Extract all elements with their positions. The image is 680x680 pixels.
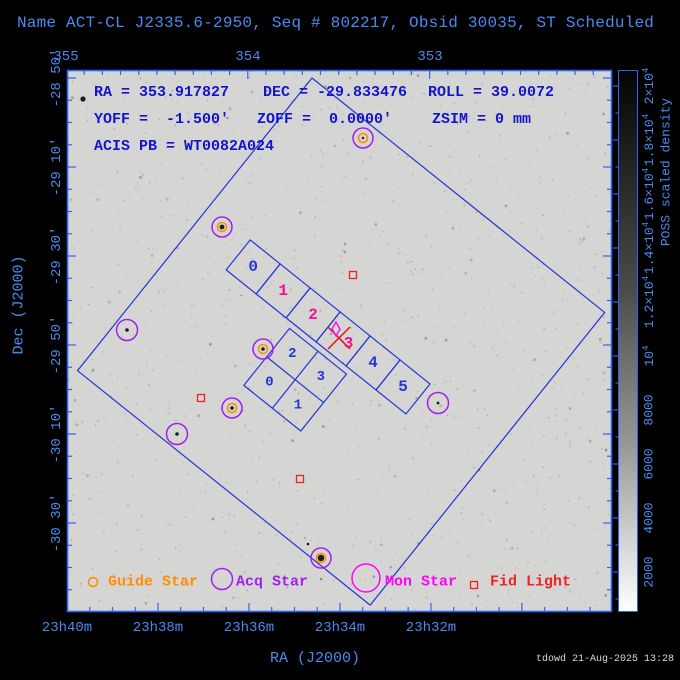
dec-tick-label: -30 30'	[49, 494, 65, 553]
x-axis-title: RA (J2000)	[270, 650, 360, 667]
colorbar-tick-label: 4000	[642, 502, 657, 533]
yoff-value: YOFF = -1.500'	[94, 111, 229, 128]
legend-label: Fid Light	[490, 574, 571, 591]
colorbar-tick-label: 8000	[642, 394, 657, 425]
footer-credit: tdowd 21-Aug-2025 13:28	[536, 654, 674, 665]
colorbar-tick-label: 1.8×104	[641, 114, 657, 166]
colorbar-tick-label: 6000	[642, 448, 657, 479]
dec-tick-label: -29 50'	[49, 316, 65, 375]
legend-label: Acq Star	[236, 574, 308, 591]
ra-hms-tick-label: 23h36m	[224, 620, 274, 636]
dec-tick-label: -28 50'	[49, 49, 65, 108]
colorbar-tick-label: 1.6×104	[641, 168, 657, 220]
ra-deg-tick-label: 354	[235, 49, 260, 65]
colorbar-gradient	[618, 70, 638, 612]
dec-tick-label: -30 10'	[49, 405, 65, 464]
zoff-value: ZOFF = 0.0000'	[257, 111, 392, 128]
dec-value: DEC = -29.833476	[263, 84, 407, 101]
ra-deg-tick-label: 353	[417, 49, 442, 65]
colorbar-tick-label: 2×104	[641, 68, 657, 105]
ra-hms-tick-label: 23h40m	[42, 620, 92, 636]
acis-pb-value: ACIS PB = WT0082A024	[94, 138, 274, 155]
roll-value: ROLL = 39.0072	[428, 84, 554, 101]
legend-label: Guide Star	[108, 574, 198, 591]
ra-hms-tick-label: 23h34m	[315, 620, 365, 636]
obsvis-window: Name ACT-CL J2335.6-2950, Seq # 802217, …	[0, 0, 680, 680]
colorbar-tick-label: 1.4×104	[641, 222, 657, 274]
ra-hms-tick-label: 23h32m	[406, 620, 456, 636]
y-axis-title: Dec (J2000)	[11, 255, 28, 354]
colorbar-tick-label: 2000	[642, 556, 657, 587]
colorbar-tick-label: 104	[641, 345, 657, 366]
ra-value: RA = 353.917827	[94, 84, 229, 101]
legend-label: Mon Star	[385, 574, 457, 591]
colorbar-tick-label: 1.2×104	[641, 276, 657, 328]
colorbar-title: POSS scaled density	[659, 98, 674, 246]
observation-title: Name ACT-CL J2335.6-2950, Seq # 802217, …	[17, 14, 654, 32]
dec-tick-label: -29 30'	[49, 227, 65, 286]
dec-tick-label: -29 10'	[49, 138, 65, 197]
ra-hms-tick-label: 23h38m	[133, 620, 183, 636]
zsim-value: ZSIM = 0 mm	[432, 111, 531, 128]
